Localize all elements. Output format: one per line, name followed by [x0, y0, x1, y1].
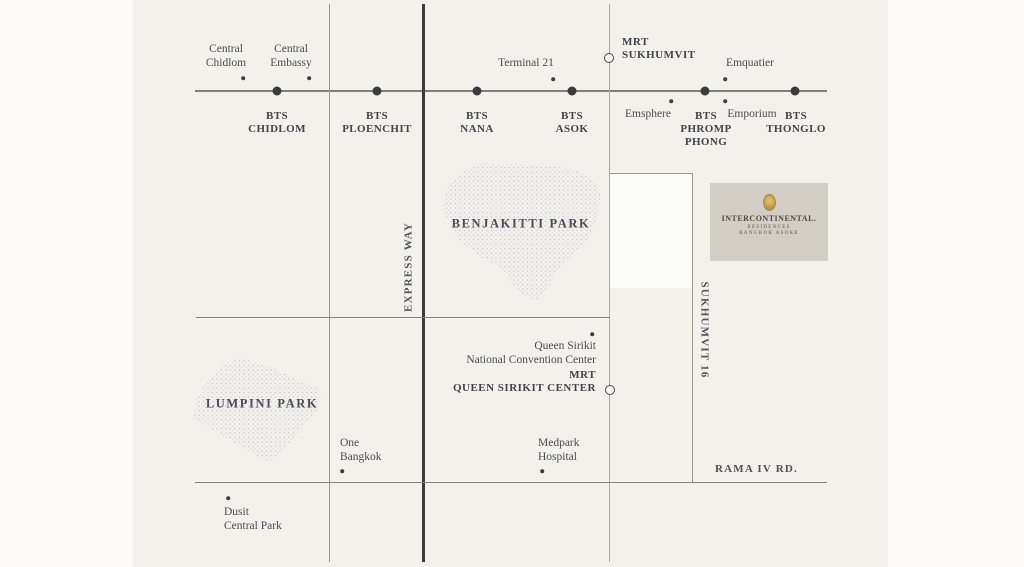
mrt-queen-sirikit-ring-icon: [605, 385, 615, 395]
qsncc-dot: [590, 332, 594, 336]
central-embassy-dot: [307, 76, 311, 80]
bts-asok-label: BTS ASOK: [556, 110, 589, 136]
emporium-dot: [723, 99, 727, 103]
emquatier-dot: [723, 77, 727, 81]
central-chidlom-label: Central Chidlom: [206, 43, 246, 71]
rama-iv-road: [195, 482, 827, 483]
bts-chidlom-dot: [273, 87, 282, 96]
site-plot: [610, 173, 692, 288]
bts-sukhumvit-line: [195, 90, 827, 92]
mrt-sukhumvit-ring-icon: [604, 53, 614, 63]
intercontinental-brand-text: INTERCONTINENTAL.: [722, 214, 817, 223]
bts-ploenchit-dot: [373, 87, 382, 96]
bts-thonglo-label: BTS THONGLO: [766, 110, 826, 136]
intercontinental-bangkok-asoke-text: BANGKOK ASOKE: [739, 231, 799, 236]
bts-nana-dot: [473, 87, 482, 96]
central-chidlom-dot: [241, 76, 245, 80]
dusit-central-park-label: Dusit Central Park: [224, 506, 282, 534]
intercontinental-crest-icon: [763, 194, 776, 211]
dusit-central-park-dot: [226, 496, 230, 500]
emsphere-label: Emsphere: [625, 108, 671, 122]
expressway-road: [422, 4, 425, 562]
emsphere-dot: [669, 99, 673, 103]
medpark-dot: [540, 469, 544, 473]
emquatier-label: Emquatier: [726, 57, 774, 71]
rama-iv-label: RAMA IV RD.: [715, 463, 798, 476]
bts-thonglo-dot: [791, 87, 800, 96]
bts-ploenchit-label: BTS PLOENCHIT: [342, 110, 412, 136]
intercontinental-residences-text: RESIDENCES: [747, 225, 790, 230]
sukhumvit-16-label: SUKHUMVIT 16: [697, 281, 710, 378]
road-horizontal-mid: [196, 317, 610, 318]
sukhumvit-16-road: [692, 173, 693, 483]
benjakitti-park-label: BENJAKITTI PARK: [452, 217, 591, 232]
bts-asok-dot: [568, 87, 577, 96]
one-bangkok-dot: [340, 469, 344, 473]
location-map: Central Chidlom Central Embassy Terminal…: [0, 0, 1024, 567]
bts-phromphong-label: BTS PHROMP PHONG: [680, 110, 731, 150]
terminal-21-dot: [551, 77, 555, 81]
road-ratchadaphisek: [609, 4, 610, 562]
medpark-label: Medpark Hospital: [538, 437, 580, 465]
mrt-queen-sirikit-label: MRT QUEEN SIRIKIT CENTER: [453, 369, 596, 395]
road-vertical-west: [329, 4, 330, 562]
bts-phromphong-dot: [701, 87, 710, 96]
bts-nana-label: BTS NANA: [460, 110, 493, 136]
mrt-sukhumvit-label: MRT SUKHUMVIT: [622, 36, 696, 62]
one-bangkok-label: One Bangkok: [340, 437, 382, 465]
terminal-21-label: Terminal 21: [498, 57, 554, 71]
intercontinental-logo-card: INTERCONTINENTAL. RESIDENCES BANGKOK ASO…: [710, 183, 828, 261]
central-embassy-label: Central Embassy: [270, 43, 312, 71]
expressway-label: EXPRESS WAY: [402, 222, 415, 312]
bts-chidlom-label: BTS CHIDLOM: [248, 110, 306, 136]
qsncc-label: Queen Sirikit National Convention Center: [466, 340, 596, 368]
lumpini-park-label: LUMPINI PARK: [206, 397, 318, 412]
